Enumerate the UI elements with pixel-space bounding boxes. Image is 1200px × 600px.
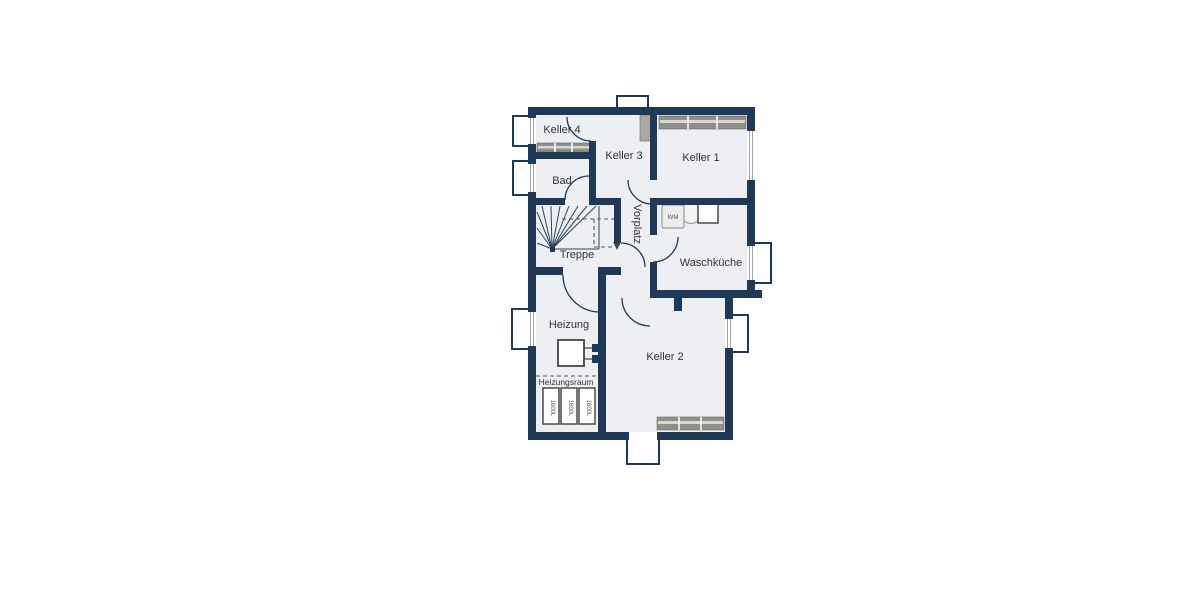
wall-outer-top bbox=[528, 107, 755, 115]
wall-vorplatz-east-lower bbox=[650, 262, 657, 298]
label-heizungsraum: Heizungsraum bbox=[539, 377, 594, 387]
window-well-keller2 bbox=[731, 315, 748, 352]
label-tank-3: 1600L bbox=[585, 400, 591, 417]
label-keller1: Keller 1 bbox=[682, 152, 719, 164]
window-well-keller4 bbox=[513, 116, 529, 146]
radiator-keller1 bbox=[659, 116, 746, 129]
wall-treppe-heizung-left bbox=[528, 267, 563, 275]
window-well-waschkueche bbox=[754, 243, 771, 283]
wall-stub-keller2 bbox=[674, 298, 682, 311]
exterior-steps bbox=[627, 437, 659, 464]
wall-waschkueche-bottom bbox=[650, 290, 762, 298]
radiator-keller2 bbox=[657, 417, 724, 430]
exterior-door-gap bbox=[629, 432, 657, 440]
wall-bad-treppe bbox=[528, 198, 565, 205]
label-bad: Bad bbox=[552, 175, 572, 187]
label-treppe: Treppe bbox=[560, 249, 594, 261]
label-keller4: Keller 4 bbox=[543, 124, 580, 136]
window-keller1 bbox=[747, 131, 755, 180]
window-waschkueche bbox=[747, 246, 755, 280]
floor-plan-page: Keller 4 Bad Keller 3 Keller 1 Treppe Vo… bbox=[0, 0, 1200, 600]
chimney-shaft bbox=[640, 115, 651, 141]
label-keller3: Keller 3 bbox=[605, 150, 642, 162]
label-washing-machine: WM bbox=[668, 215, 679, 221]
label-tank-2: 1600L bbox=[567, 400, 573, 417]
radiator-keller4 bbox=[537, 143, 590, 152]
window-bad bbox=[528, 164, 536, 192]
wall-keller1-waschkueche bbox=[650, 198, 755, 205]
label-heizung: Heizung bbox=[549, 319, 589, 331]
wall-vorplatz-east-upper bbox=[650, 204, 657, 235]
window-keller2 bbox=[725, 319, 733, 348]
window-well-bad bbox=[513, 161, 529, 195]
label-keller2: Keller 2 bbox=[646, 351, 683, 363]
window-heizung bbox=[528, 312, 536, 346]
sink bbox=[698, 203, 718, 223]
wall-keller4-keller3-divider bbox=[589, 141, 596, 205]
label-waschkueche: Waschküche bbox=[680, 257, 743, 269]
window-keller4 bbox=[528, 118, 536, 144]
wall-keller3-keller1 bbox=[650, 115, 657, 180]
window-well-heizung bbox=[512, 309, 529, 349]
floor-plan-svg: Keller 4 Bad Keller 3 Keller 1 Treppe Vo… bbox=[0, 0, 1200, 600]
label-vorplatz: Vorplatz bbox=[631, 204, 643, 244]
label-tank-1: 1600L bbox=[549, 400, 555, 417]
wall-vorplatz-west bbox=[614, 198, 621, 243]
wall-heizung-keller2 bbox=[598, 267, 606, 440]
wall-keller4-bad bbox=[528, 152, 596, 159]
boiler bbox=[558, 340, 584, 366]
wall-outer-right-lower bbox=[725, 290, 733, 440]
